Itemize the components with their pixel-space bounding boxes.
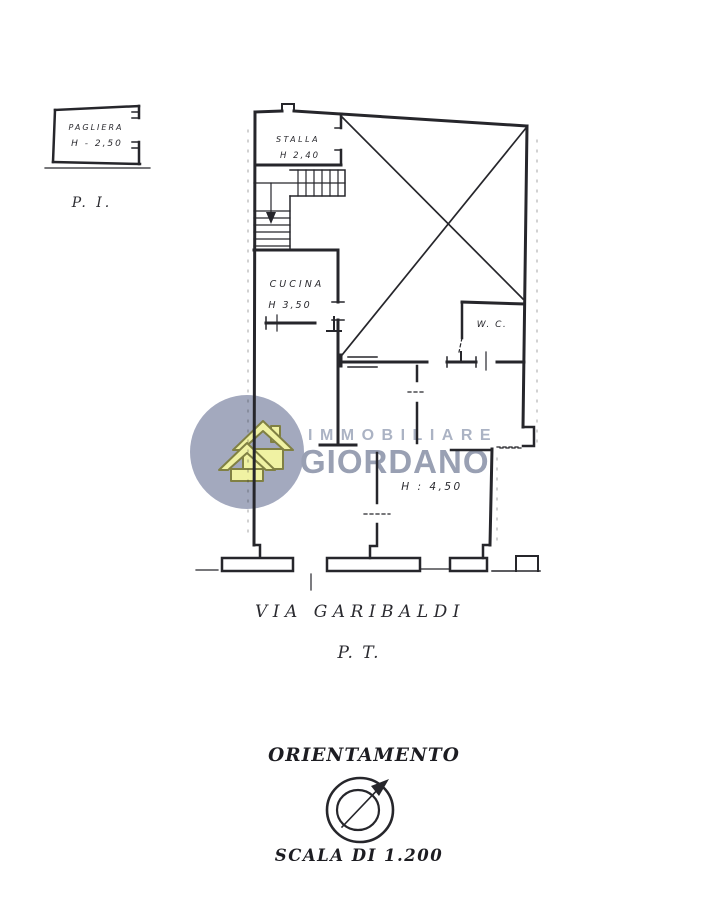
orientation-title: ORIENTAMENTO xyxy=(268,745,460,766)
watermark-line2: GIORDANO xyxy=(300,443,490,480)
ground-floor-label: P. T. xyxy=(336,643,380,663)
first-floor-label: P. I. xyxy=(71,195,112,211)
sala-height-label: H : 4,50 xyxy=(401,481,463,493)
staircase xyxy=(254,170,345,250)
compass xyxy=(327,778,393,842)
scale-label: SCALA DI 1.200 xyxy=(275,846,443,865)
stalla-label: STALLA xyxy=(276,135,320,144)
pagliera-height-label: H - 2,50 xyxy=(71,139,123,149)
pagliera-room-walls xyxy=(45,106,150,168)
pagliera-label: PAGLIERA xyxy=(69,123,124,132)
outer-walls xyxy=(254,104,534,558)
floor-plan-drawing: IMMOBILIARE GIORDANO xyxy=(0,0,719,900)
stalla-height-label: H 2,40 xyxy=(280,151,320,161)
scanned-floor-plan-page: IMMOBILIARE GIORDANO xyxy=(0,0,719,900)
street-name-label: VIA GARIBALDI xyxy=(255,602,465,622)
street-facade-walls xyxy=(196,556,540,590)
plan-labels: PAGLIERA H - 2,50 P. I. STALLA H 2,40 CU… xyxy=(69,123,508,865)
cucina-height-label: H 3,50 xyxy=(268,300,311,311)
wc-label: W. C. xyxy=(477,320,508,330)
cucina-label: CUCINA xyxy=(270,279,325,290)
middle-dividing-wall xyxy=(341,352,524,370)
